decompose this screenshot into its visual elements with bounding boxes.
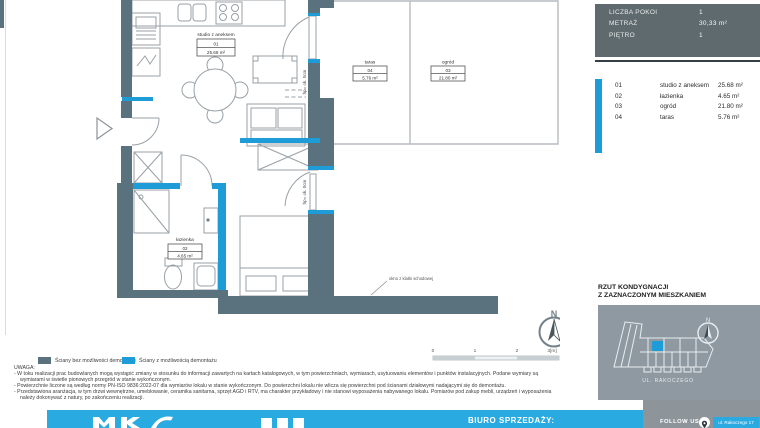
svg-text:łazienka: łazienka — [176, 237, 194, 243]
room-list: 01 studio z aneksem 25.68 m² 02 łazienka… — [595, 81, 760, 123]
kitchen-appliance — [132, 48, 160, 76]
room-area: 21.80 m² — [718, 102, 743, 113]
sill-height-note-1: hp= ok. 0cm — [302, 69, 307, 94]
svg-text:2: 2 — [516, 348, 519, 354]
room-label-ogrod: ogród 03 21.80 m² — [431, 60, 465, 82]
room-no: 03 — [615, 102, 660, 113]
divider-line — [595, 60, 760, 62]
svg-text:1: 1 — [474, 348, 477, 354]
room-no: 02 — [615, 92, 660, 103]
room-list-row: 02 łazienka 4.65 m² — [595, 92, 760, 103]
room-no: 01 — [615, 81, 660, 92]
bathroom-cabinet — [204, 208, 218, 233]
bed — [240, 216, 318, 296]
svg-text:taras: taras — [365, 60, 376, 66]
info-row: LICZBA POKOI 1 — [595, 4, 760, 16]
room-label-lazienka: łazienka 02 4.65 m² — [168, 237, 202, 259]
room-label-taras: taras 04 5.76 m² — [353, 60, 387, 82]
legend-item-demountable-walls: Ściany z możliwością demontażu — [122, 357, 217, 364]
location-pin-icon — [699, 417, 710, 428]
room-list-row: 04 taras 5.76 m² — [595, 113, 760, 124]
entrance-arrow-icon — [97, 118, 112, 139]
sales-office-label: BIURO SPRZEDAŻY: — [468, 416, 555, 425]
dining-table — [182, 57, 248, 123]
room-name: ogród — [660, 102, 718, 113]
apartment-info-panel: LICZBA POKOI 1 METRAŻ 30,33 m² PIĘTRO 1 — [595, 4, 760, 57]
info-value: 1 — [699, 32, 703, 39]
room-list-row: 01 studio z aneksem 25.68 m² — [595, 81, 760, 92]
svg-text:3[m]: 3[m] — [547, 348, 556, 354]
room-area: 25.68 m² — [718, 81, 743, 92]
svg-text:0: 0 — [432, 348, 435, 354]
svg-text:5.76 m²: 5.76 m² — [362, 76, 378, 81]
svg-text:03: 03 — [445, 68, 451, 73]
building-location-panel: N UL. RAKOCZEGO — [598, 305, 760, 400]
floorplan-card-page: studio z aneksem 01 25.68 m² taras 04 5.… — [0, 0, 760, 428]
room-name: taras — [660, 113, 718, 124]
highlighted-unit — [652, 341, 663, 351]
demountable-wall-swatch — [122, 357, 135, 364]
map-compass-icon: N — [698, 318, 718, 343]
table — [253, 56, 297, 83]
walls-solid — [117, 0, 498, 314]
compass-icon: N — [540, 309, 561, 347]
svg-text:04: 04 — [367, 68, 373, 73]
info-row: METRAŻ 30,33 m² — [595, 16, 760, 28]
shower — [134, 190, 169, 233]
building-outline-map: N UL. RAKOCZEGO — [598, 305, 760, 400]
info-label: LICZBA POKOI — [609, 9, 699, 16]
door-entrance — [132, 118, 159, 145]
disclaimer-notes: UWAGA: - W toku realizacji prac budowlan… — [14, 366, 562, 402]
kitchen-sink-unit — [132, 13, 160, 45]
svg-text:01: 01 — [213, 42, 219, 47]
svg-text:okno z klatki schodowej: okno z klatki schodowej — [389, 276, 433, 281]
room-name: łazienka — [660, 92, 718, 103]
door-taras — [283, 16, 316, 59]
scale-bar: 0 1 2 3[m] — [432, 348, 559, 360]
info-value: 1 — [699, 9, 703, 16]
sill-height-note-2: hp= ok. 0cm — [302, 179, 307, 204]
heading-line-1: RZUT KONDYGNACJI — [598, 284, 706, 292]
room-name: studio z aneksem — [660, 81, 718, 92]
window-low-sill — [285, 172, 316, 210]
ventilation-shaft — [134, 152, 162, 183]
washbasin — [194, 263, 218, 290]
heading-line-2: Z ZAZNACZONYM MIESZKANIEM — [598, 292, 706, 300]
floor-plan-drawing: studio z aneksem 01 25.68 m² taras 04 5.… — [0, 0, 560, 406]
door-bathroom — [181, 155, 212, 186]
svg-text:21.80 m²: 21.80 m² — [439, 76, 458, 81]
svg-text:studio z aneksem: studio z aneksem — [197, 32, 234, 38]
notes-bullet: - Przedstawiona aranżacja, w tym drzwi w… — [14, 390, 562, 402]
adjacent-unit-wall-fragment — [0, 0, 6, 335]
svg-text:02: 02 — [182, 246, 188, 251]
legend-label: Ściany z możliwością demontażu — [139, 358, 217, 364]
info-value: 30,33 m² — [699, 20, 727, 27]
room-area: 4.65 m² — [718, 92, 739, 103]
info-row: PIĘTRO 1 — [595, 27, 760, 39]
location-plan-heading: RZUT KONDYGNACJI Z ZAZNACZONYM MIESZKANI… — [598, 284, 706, 300]
solid-wall-swatch — [38, 357, 51, 364]
info-label: METRAŻ — [609, 20, 699, 27]
info-label: PIĘTRO — [609, 32, 699, 39]
follow-us-label: FOLLOW US — [660, 419, 699, 425]
street-label: UL. RAKOCZEGO — [642, 378, 694, 384]
room-area: 5.76 m² — [718, 113, 739, 124]
svg-text:ogród: ogród — [442, 60, 455, 66]
address-badge: ul. Rakoczego 17 — [713, 417, 759, 428]
svg-text:4.65 m²: 4.65 m² — [177, 254, 193, 259]
room-list-row: 03 ogród 21.80 m² — [595, 102, 760, 113]
room-no: 04 — [615, 113, 660, 124]
staircase-window-note: okno z klatki schodowej — [371, 276, 433, 295]
footer-social-block: FOLLOW US ul. Rakoczego 17 — [643, 400, 760, 428]
room-label-studio: studio z aneksem 01 25.68 m² — [197, 32, 235, 56]
svg-text:25.68 m²: 25.68 m² — [207, 50, 226, 55]
toilet — [165, 258, 183, 289]
